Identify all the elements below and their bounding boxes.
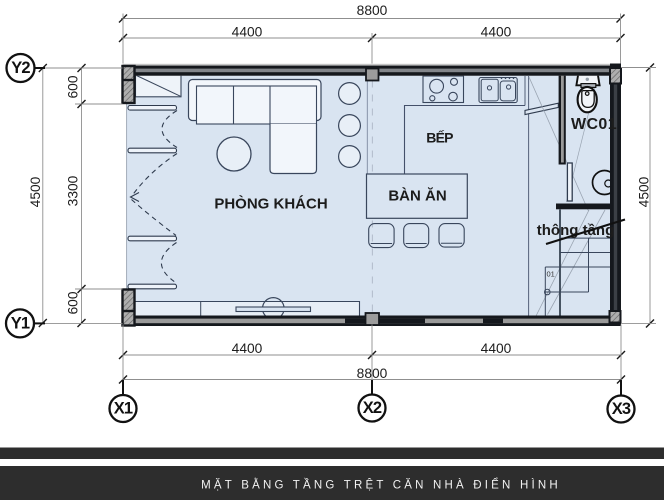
svg-text:4400: 4400 [232,341,263,356]
svg-text:4400: 4400 [481,341,512,356]
svg-text:4500: 4500 [637,176,652,207]
svg-text:X1: X1 [114,400,133,418]
svg-text:3300: 3300 [66,175,81,206]
svg-text:Y2: Y2 [11,59,30,77]
svg-text:PHÒNG KHÁCH: PHÒNG KHÁCH [214,195,327,213]
svg-text:Y1: Y1 [11,314,30,332]
svg-text:X2: X2 [363,399,382,417]
svg-text:BÀN ĂN: BÀN ĂN [388,188,446,205]
svg-text:01: 01 [547,270,555,279]
svg-text:WC01: WC01 [571,116,617,133]
svg-text:X3: X3 [612,400,631,418]
svg-text:4400: 4400 [481,24,512,39]
svg-text:thông tầng: thông tầng [537,222,614,239]
svg-text:4500: 4500 [28,176,43,207]
svg-text:8800: 8800 [357,3,388,18]
svg-text:BẾP: BẾP [426,130,453,146]
svg-text:MẶT BẰNG TẦNG TRỆT CĂN NHÀ ĐIỂ: MẶT BẰNG TẦNG TRỆT CĂN NHÀ ĐIỂN HÌNH [201,479,561,492]
svg-text:600: 600 [66,291,81,314]
svg-text:4400: 4400 [232,24,263,39]
svg-text:600: 600 [66,75,81,98]
